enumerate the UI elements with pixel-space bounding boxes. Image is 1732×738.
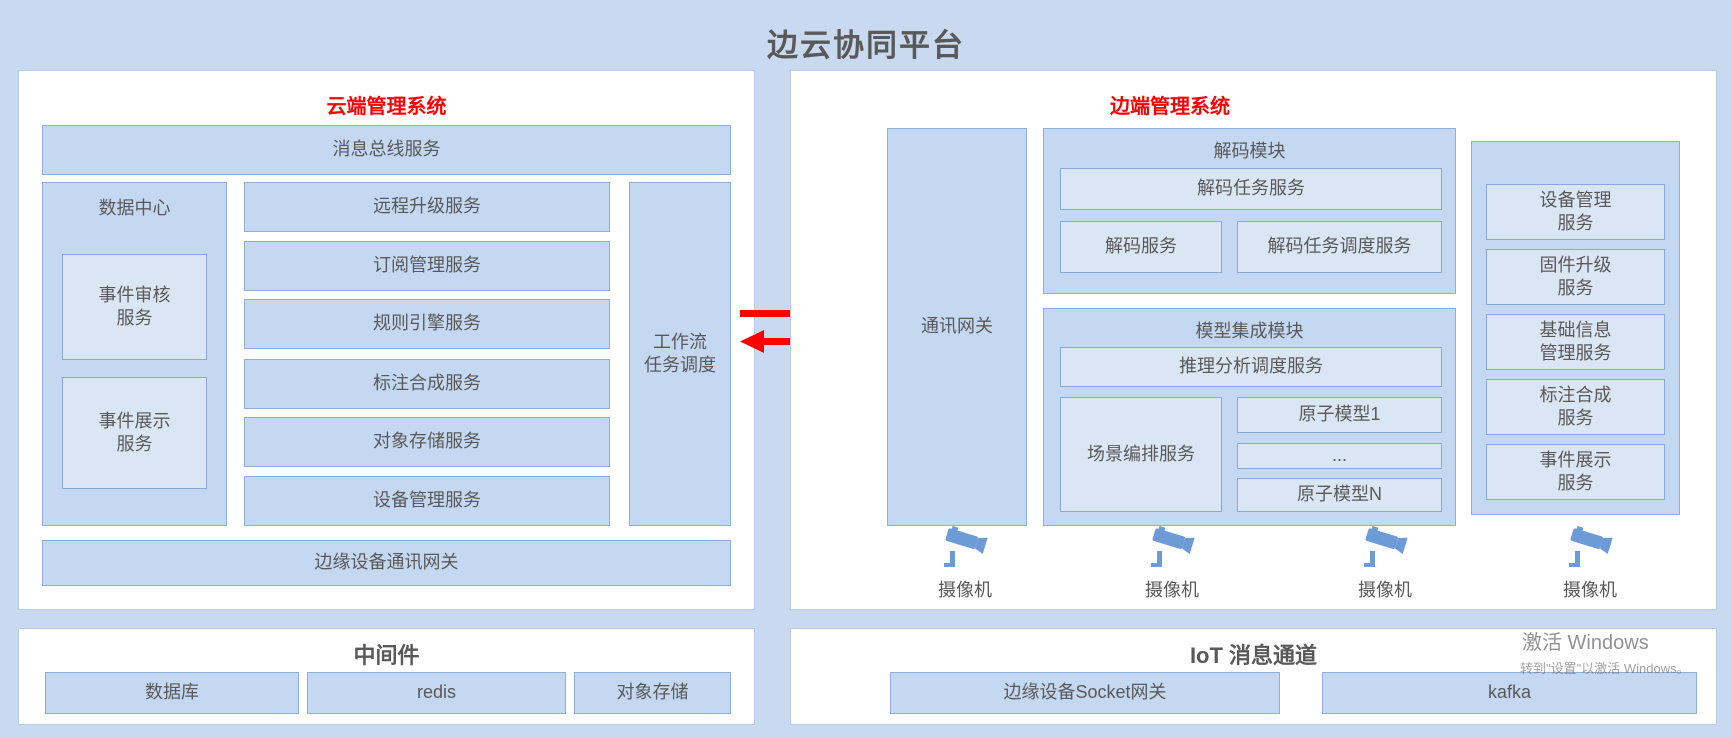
event-display-edge-line1: 事件展示 [1540, 449, 1612, 472]
device-mgmt-service-edge: 设备管理 服务 [1486, 184, 1665, 240]
event-display-service-edge: 事件展示 服务 [1486, 444, 1665, 500]
decode-module-title: 解码模块 [1043, 137, 1456, 163]
workflow-task-scheduler: 工作流 任务调度 [629, 182, 731, 526]
atomic-model-n: 原子模型N [1237, 478, 1442, 512]
object-storage-box: 对象存储 [574, 672, 731, 714]
diagram-canvas: 边云协同平台 云端管理系统 消息总线服务 数据中心 事件审核 服务 事件展示 服… [0, 0, 1732, 738]
redis-box: redis [307, 672, 566, 714]
event-display-line1: 事件展示 [99, 410, 171, 433]
firmware-line1: 固件升级 [1540, 254, 1612, 277]
firmware-line2: 服务 [1558, 277, 1594, 300]
database-box: 数据库 [45, 672, 299, 714]
firmware-upgrade-service: 固件升级 服务 [1486, 249, 1665, 305]
camera-icon [1146, 526, 1198, 572]
subscription-mgmt-service: 订阅管理服务 [244, 241, 610, 291]
annotation-line1: 标注合成 [1540, 384, 1612, 407]
basic-info-line2: 管理服务 [1540, 342, 1612, 365]
atomic-model-ellipsis: ... [1237, 443, 1442, 469]
windows-activation-watermark-line1: 激活 Windows [1522, 626, 1649, 655]
inference-scheduler-service: 推理分析调度服务 [1060, 347, 1442, 387]
decode-task-scheduler-service: 解码任务调度服务 [1237, 221, 1442, 273]
annotation-line2: 服务 [1558, 407, 1594, 430]
edge-socket-gateway-box: 边缘设备Socket网关 [890, 672, 1280, 714]
camera-label: 摄像机 [1545, 576, 1635, 602]
camera-icon [1564, 526, 1616, 572]
atomic-model-1: 原子模型1 [1237, 397, 1442, 433]
model-integration-module-title: 模型集成模块 [1043, 317, 1456, 343]
object-storage-service: 对象存储服务 [244, 417, 610, 467]
middleware-title: 中间件 [18, 638, 755, 670]
cloud-panel-title: 云端管理系统 [18, 90, 755, 119]
comm-gateway-box: 通讯网关 [887, 128, 1027, 526]
page-title: 边云协同平台 [0, 20, 1732, 65]
decode-service: 解码服务 [1060, 221, 1222, 273]
message-bus-service: 消息总线服务 [42, 125, 731, 175]
event-display-line2: 服务 [117, 433, 153, 456]
kafka-box: kafka [1322, 672, 1697, 714]
workflow-line1: 工作流 [653, 331, 707, 354]
event-audit-line2: 服务 [117, 307, 153, 330]
remote-upgrade-service: 远程升级服务 [244, 182, 610, 232]
windows-activation-watermark-line2: 转到"设置"以激活 Windows。 [1520, 658, 1690, 677]
event-audit-line1: 事件审核 [99, 284, 171, 307]
event-display-edge-line2: 服务 [1558, 472, 1594, 495]
annotation-synthesis-service: 标注合成服务 [244, 359, 610, 409]
device-mgmt-line1: 设备管理 [1540, 189, 1612, 212]
camera-label: 摄像机 [1127, 576, 1217, 602]
event-audit-service: 事件审核 服务 [62, 254, 207, 360]
camera-label: 摄像机 [1340, 576, 1430, 602]
camera-label: 摄像机 [920, 576, 1010, 602]
camera-icon [939, 526, 991, 572]
basic-info-line1: 基础信息 [1540, 319, 1612, 342]
rule-engine-service: 规则引擎服务 [244, 299, 610, 349]
workflow-line2: 任务调度 [644, 354, 716, 377]
edge-panel-title: 边端管理系统 [790, 90, 1550, 119]
scene-orchestration-service: 场景编排服务 [1060, 397, 1222, 512]
basic-info-mgmt-service: 基础信息 管理服务 [1486, 314, 1665, 370]
event-display-service: 事件展示 服务 [62, 377, 207, 489]
edge-device-comm-gateway: 边缘设备通讯网关 [42, 540, 731, 586]
decode-task-service: 解码任务服务 [1060, 168, 1442, 210]
annotation-synthesis-service-edge: 标注合成 服务 [1486, 379, 1665, 435]
camera-icon [1359, 526, 1411, 572]
device-mgmt-service: 设备管理服务 [244, 476, 610, 526]
device-mgmt-line2: 服务 [1558, 212, 1594, 235]
